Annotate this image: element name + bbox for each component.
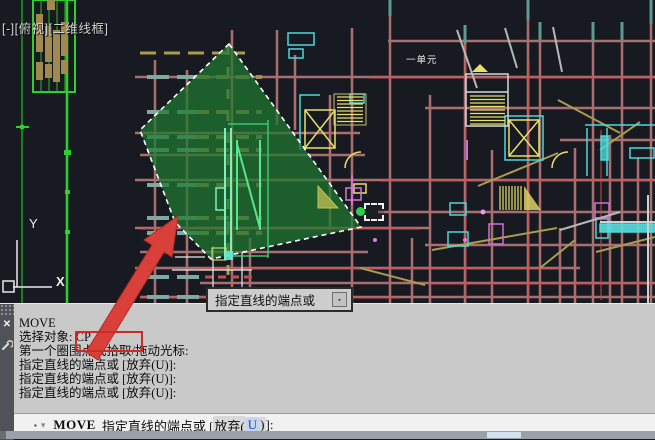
close-icon[interactable]: ✕ (0, 317, 14, 333)
left-green-structure (16, 0, 75, 303)
command-history: MOVE 选择对象: CP 第一个圈围点或拾取/拖动光标: 指定直线的端点或 [… (14, 304, 655, 400)
autocad-window: { "viewport_controls": { "minimize": "[-… (0, 0, 655, 439)
drag-grip-handle[interactable] (0, 304, 14, 317)
command-window-side-strip: ✕ (0, 304, 14, 440)
dynamic-input-tooltip: 指定直线的端点或 ▪ (206, 287, 353, 312)
snap-marker-dot (356, 207, 365, 216)
column-caps (390, 0, 651, 44)
history-line: 指定直线的端点或 [放弃(U)]: (19, 387, 655, 401)
history-line: 指定直线的端点或 [放弃(U)]: (19, 359, 655, 373)
command-window: ✕ MOVE 选择对象: CP 第一个圈围点或拾取/拖动光标: 指定直线的端点或… (0, 303, 655, 439)
cursor-pickbox (364, 203, 384, 221)
select-objects-prompt: 选择对象: (19, 330, 76, 344)
unit-text-label: 一单元 (406, 52, 438, 66)
status-bar-notch (0, 431, 6, 439)
tooltip-expand-button[interactable]: ▪ (332, 292, 347, 307)
viewport-controls: [-][俯视][二维线框] (2, 18, 109, 37)
history-line: MOVE (19, 317, 655, 331)
ucs-y-axis-label: Y (29, 216, 38, 231)
ucs-icon (3, 240, 52, 292)
viewport-view-control[interactable]: [俯视] (15, 22, 49, 36)
recent-commands-icon[interactable]: ▾ (41, 420, 46, 431)
customize-wrench-icon[interactable] (1, 339, 13, 351)
model-space-canvas[interactable]: [-][俯视][二维线框] 一单元 Y X (0, 0, 655, 303)
history-line: 指定直线的端点或 [放弃(U)]: (19, 373, 655, 387)
command-marker-icon: ▪ (34, 421, 37, 430)
cp-highlight-box (75, 331, 143, 352)
viewport-visual-style-control[interactable]: [二维线框] (49, 22, 109, 36)
tooltip-text: 指定直线的端点或 (208, 290, 332, 309)
status-bar-edge (0, 431, 655, 439)
gray-details (457, 27, 655, 303)
viewport-minimize-control[interactable]: [-] (2, 22, 15, 36)
cad-drawing (0, 0, 655, 303)
status-bar-highlight (487, 432, 521, 438)
ucs-x-axis-label: X (56, 274, 65, 289)
